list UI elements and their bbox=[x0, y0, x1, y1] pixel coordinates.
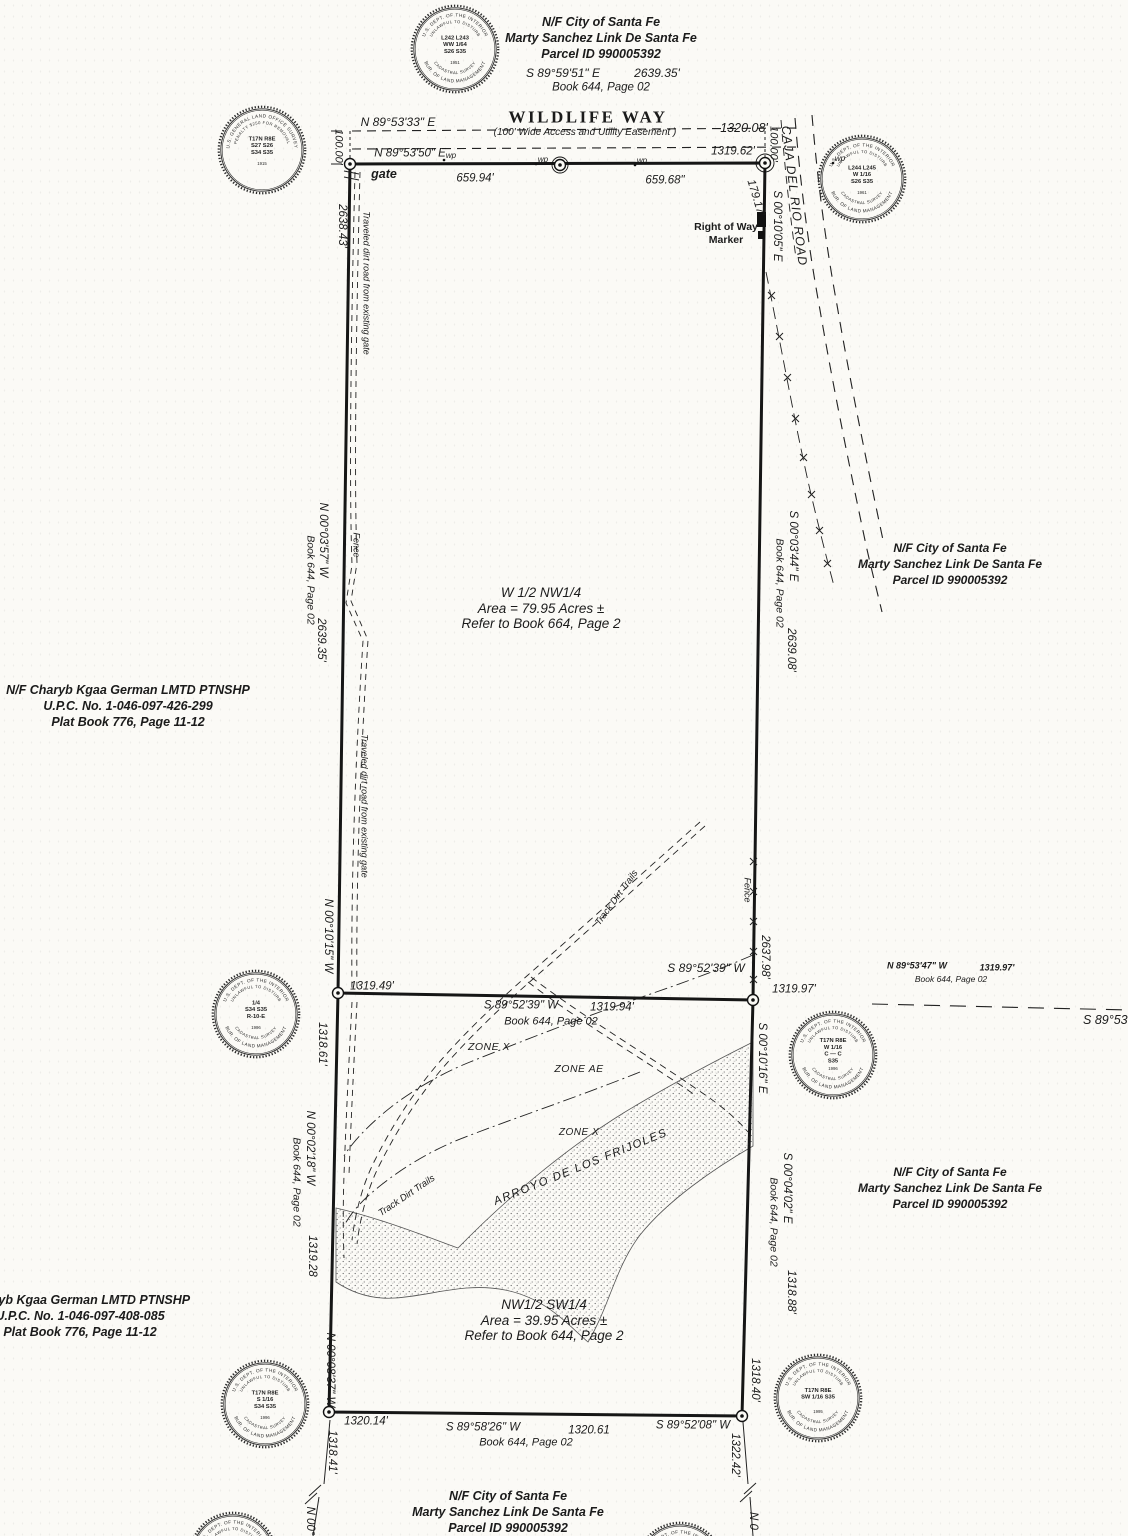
svg-text:C — C: C — C bbox=[824, 1052, 841, 1058]
svg-text:1/4: 1/4 bbox=[252, 1001, 261, 1007]
dirt-road-label: Traveled dirt road from existing gate bbox=[360, 734, 369, 877]
easement-distance-north: 1320.08' bbox=[720, 122, 768, 135]
parcel-north-label: W 1/2 NW1/4 Area = 79.95 Acres ± Refer t… bbox=[461, 585, 620, 632]
blm-cadastral-seal-partial: U.S. DEPT. OF THE INTERIORUNLAWFUL TO DI… bbox=[187, 1510, 280, 1536]
row-marker-label: Marker bbox=[709, 235, 743, 246]
gate-symbol bbox=[344, 171, 359, 180]
south-book: Book 644, Page 02 bbox=[479, 1438, 573, 1449]
north-line-book: Book 644, Page 02 bbox=[552, 82, 650, 94]
witness-point-label: wp bbox=[538, 156, 548, 164]
owner-line: N/F City of Santa Fe bbox=[412, 1488, 604, 1504]
west-distance-top: 2638.43' bbox=[335, 204, 347, 248]
owner-line: N/F City of Santa Fe bbox=[505, 14, 697, 30]
blm-cadastral-seal: U.S. DEPT. OF THE INTERIORUNLAWFUL TO DI… bbox=[210, 968, 303, 1061]
west-distance: 2639.35' bbox=[314, 618, 326, 662]
svg-text:S34 S35: S34 S35 bbox=[245, 1007, 268, 1013]
upc-number: U.P.C. No. 1-046-097-426-299 bbox=[6, 698, 250, 714]
svg-text:1996: 1996 bbox=[260, 1415, 270, 1420]
adjoiner-right-lower: N/F City of Santa Fe Marty Sanchez Link … bbox=[858, 1164, 1042, 1212]
owner-line: Marty Sanchez Link De Santa Fe bbox=[858, 556, 1042, 572]
tie-distance-east: 100.00' bbox=[768, 126, 779, 162]
owner-line: Marty Sanchez Link De Santa Fe bbox=[412, 1504, 604, 1520]
parcel-id: Parcel ID 990005392 bbox=[858, 1196, 1042, 1212]
south-bearing-east: S 89°52'08" W bbox=[656, 1420, 730, 1432]
east-distance-bottom: 1318.40' bbox=[748, 1358, 760, 1402]
owner-line: Marty Sanchez Link De Santa Fe bbox=[858, 1180, 1042, 1196]
svg-text:S34 S35: S34 S35 bbox=[254, 1404, 277, 1410]
svg-text:S26 S35: S26 S35 bbox=[851, 179, 874, 185]
svg-text:S27 S26: S27 S26 bbox=[251, 143, 273, 149]
easement-note: (100' Wide Access and Utility Easement ) bbox=[494, 128, 677, 138]
west-bearing-low: N 00°10'15" W bbox=[321, 899, 333, 974]
right-line-bearing: N 89°53'47" W bbox=[887, 962, 947, 971]
svg-text:T17N R8E: T17N R8E bbox=[820, 1038, 847, 1044]
adjoiner-bottom: N/F City of Santa Fe Marty Sanchez Link … bbox=[412, 1488, 604, 1536]
top-segment-distance-e: 659.68" bbox=[645, 175, 684, 187]
parcel-aliquot: W 1/2 NW1/4 bbox=[461, 585, 620, 601]
midline-distance: 1319.94' bbox=[590, 1002, 634, 1014]
parcel-reference: Refer to Book 644, Page 2 bbox=[464, 1328, 623, 1344]
wildlife-way-name: WILDLIFE WAY bbox=[509, 109, 668, 126]
svg-text:R-10-E: R-10-E bbox=[247, 1014, 265, 1020]
east-distance-low: 2637.98' bbox=[758, 935, 770, 979]
svg-text:1951: 1951 bbox=[450, 60, 460, 65]
north-line-bearing: S 89°59'51" E bbox=[526, 67, 600, 79]
west-bearing: N 00°03'57" W bbox=[316, 503, 328, 578]
fence-label-west: Fence bbox=[352, 532, 361, 557]
east-bearing: S 00°03'44" E bbox=[786, 511, 798, 582]
svg-text:W 1/16: W 1/16 bbox=[853, 172, 871, 178]
owner-line: N/F City of Santa Fe bbox=[858, 1164, 1042, 1180]
east-below-distance: 1322.42' bbox=[728, 1433, 740, 1477]
zone-ae-label: ZONE AE bbox=[554, 1064, 603, 1075]
parcel-reference: Refer to Book 664, Page 2 bbox=[461, 616, 620, 632]
west-partial-bearing: N 00° bbox=[303, 1507, 315, 1536]
west-bearing-bottom: N 00°08'37" W bbox=[323, 1333, 335, 1408]
east-distance: 2639.08' bbox=[784, 628, 796, 672]
top-segment-distance-w: 659.94' bbox=[456, 173, 493, 185]
blm-cadastral-seal-partial: U.S. DEPT. OF THE INTERIORUNLAWFUL TO DI… bbox=[634, 1520, 727, 1536]
top-boundary-bearing: N 89°53'50" E bbox=[374, 148, 446, 160]
svg-text:T17N R8E: T17N R8E bbox=[252, 1391, 279, 1397]
north-line-distance: 2639.35' bbox=[634, 67, 680, 79]
east-book: Book 644, Page 02 bbox=[774, 538, 785, 627]
north-adjoiner-block: N/F City of Santa Fe Marty Sanchez Link … bbox=[505, 14, 697, 62]
svg-text:1915: 1915 bbox=[257, 161, 267, 166]
upc-number: U.P.C. No. 1-046-097-408-085 bbox=[0, 1308, 190, 1324]
adjoiner-right-upper: N/F City of Santa Fe Marty Sanchez Link … bbox=[858, 540, 1042, 588]
blm-cadastral-seal: U.S. DEPT. OF THE INTERIORUNLAWFUL TO DI… bbox=[816, 133, 909, 226]
west-book: Book 644, Page 02 bbox=[305, 535, 316, 624]
svg-text:T17N R8E: T17N R8E bbox=[249, 137, 276, 143]
east-boundary-bearing-upper: S 00°10'05" E bbox=[770, 191, 782, 262]
glo-survey-seal: U.S. GENERAL LAND OFFICE SURVEYPENALTY $… bbox=[216, 104, 309, 197]
row-marker-label: Right of Way bbox=[694, 222, 758, 233]
zone-x-lower-label: ZONE X bbox=[559, 1128, 599, 1138]
svg-text:S35: S35 bbox=[828, 1058, 839, 1064]
svg-text:L244 L245: L244 L245 bbox=[848, 166, 877, 172]
blm-cadastral-seal: U.S. DEPT. OF THE INTERIORUNLAWFUL TO DI… bbox=[772, 1352, 865, 1445]
right-line-book: Book 644, Page 02 bbox=[915, 975, 987, 984]
zone-x-upper-label: ZONE X bbox=[468, 1042, 510, 1053]
south-distance-center: 1320.61 bbox=[568, 1425, 610, 1437]
midline-distance-east: 1319.97' bbox=[772, 984, 816, 996]
parcel-area: Area = 39.95 Acres ± bbox=[464, 1312, 623, 1328]
adjoiner-dashed-line-east bbox=[872, 1004, 1128, 1010]
witness-point-label: wp bbox=[446, 152, 456, 160]
svg-text:SW 1/16 S35: SW 1/16 S35 bbox=[801, 1395, 836, 1401]
midline-book: Book 644, Page 02 bbox=[504, 1017, 598, 1028]
survey-plat-page: N/F City of Santa Fe Marty Sanchez Link … bbox=[0, 0, 1128, 1536]
adjoiner-left-upper: N/F Charyb Kgaa German LMTD PTNSHP U.P.C… bbox=[6, 682, 250, 730]
parcel-area: Area = 79.95 Acres ± bbox=[461, 600, 620, 616]
tie-distance-west: 100.00' bbox=[333, 129, 344, 165]
plat-reference: Plat Book 776, Page 11-12 bbox=[0, 1324, 190, 1340]
gate-label: gate bbox=[371, 168, 397, 181]
svg-text:S34 S35: S34 S35 bbox=[251, 150, 274, 156]
east-bearing-low: S 00°04'02" E bbox=[780, 1153, 792, 1224]
svg-text:WW 1/64: WW 1/64 bbox=[443, 42, 467, 48]
svg-text:S 1/16: S 1/16 bbox=[257, 1397, 274, 1403]
owner-line: N/F City of Santa Fe bbox=[858, 540, 1042, 556]
top-boundary-distance: 1319.62' bbox=[711, 146, 755, 158]
blm-cadastral-seal: U.S. DEPT. OF THE INTERIORUNLAWFUL TO DI… bbox=[219, 1358, 312, 1451]
parcel-id: Parcel ID 990005392 bbox=[505, 46, 697, 62]
svg-text:W 1/16: W 1/16 bbox=[824, 1045, 842, 1051]
dirt-road-label: Traveled dirt road from existing gate bbox=[362, 211, 371, 354]
parcel-south-label: NW1/2 SW1/4 Area = 39.95 Acres ± Refer t… bbox=[464, 1297, 623, 1344]
blm-cadastral-seal: U.S. DEPT. OF THE INTERIORUNLAWFUL TO DI… bbox=[409, 3, 502, 96]
witness-point-label: wp bbox=[637, 157, 647, 165]
easement-bearing-north: N 89°53'33" E bbox=[361, 116, 436, 128]
svg-text:S26 S35: S26 S35 bbox=[444, 49, 467, 55]
svg-text:1995: 1995 bbox=[813, 1409, 823, 1414]
blm-cadastral-seal: U.S. DEPT. OF THE INTERIORUNLAWFUL TO DI… bbox=[787, 1009, 880, 1102]
east-partial-bearing: N 0 bbox=[746, 1512, 758, 1530]
midline-bearing-upper: S 89°52'39" W bbox=[667, 962, 744, 974]
east-book-low: Book 644, Page 02 bbox=[768, 1177, 779, 1266]
owner-line: N/F Charyb Kgaa German LMTD PTNSHP bbox=[6, 682, 250, 698]
west-bearing-adjoiner: N 00°02'18" W bbox=[303, 1111, 315, 1186]
west-book-low: Book 644, Page 02 bbox=[291, 1137, 302, 1226]
south-distance-west: 1320.14' bbox=[344, 1416, 388, 1428]
right-line-distance: 1319.97' bbox=[980, 964, 1015, 973]
adjoiner-left-lower: Charyb Kgaa German LMTD PTNSHP U.P.C. No… bbox=[0, 1292, 190, 1340]
owner-line: Marty Sanchez Link De Santa Fe bbox=[505, 30, 697, 46]
south-bearing-west: S 89°58'26" W bbox=[446, 1422, 520, 1434]
svg-text:1961: 1961 bbox=[857, 190, 867, 195]
east-distance-low2: 1318.88' bbox=[784, 1270, 796, 1314]
west-distance-low: 1318.61' bbox=[315, 1022, 327, 1066]
west-distance-adjoiner: 1319.28 bbox=[305, 1235, 317, 1277]
svg-text:T17N R8E: T17N R8E bbox=[805, 1388, 832, 1394]
parcel-id: Parcel ID 990005392 bbox=[858, 572, 1042, 588]
owner-line: Charyb Kgaa German LMTD PTNSHP bbox=[0, 1292, 190, 1308]
midline-distance-west: 1319.49' bbox=[350, 981, 394, 993]
plat-reference: Plat Book 776, Page 11-12 bbox=[6, 714, 250, 730]
east-bearing-mid: S 00°10'16" E bbox=[755, 1023, 767, 1094]
svg-text:1996: 1996 bbox=[251, 1025, 261, 1030]
fence-label-east: Fence bbox=[743, 877, 752, 902]
svg-text:1996: 1996 bbox=[828, 1066, 838, 1071]
parcel-id: Parcel ID 990005392 bbox=[412, 1520, 604, 1536]
parcel-aliquot: NW1/2 SW1/4 bbox=[464, 1297, 623, 1313]
midline-bearing: S 89°52'39" W bbox=[484, 1000, 558, 1012]
west-below-distance: 1318.41' bbox=[325, 1430, 337, 1474]
right-clipped-bearing: S 89°53'4 bbox=[1083, 1014, 1128, 1027]
svg-text:L242 L243: L242 L243 bbox=[441, 36, 469, 42]
